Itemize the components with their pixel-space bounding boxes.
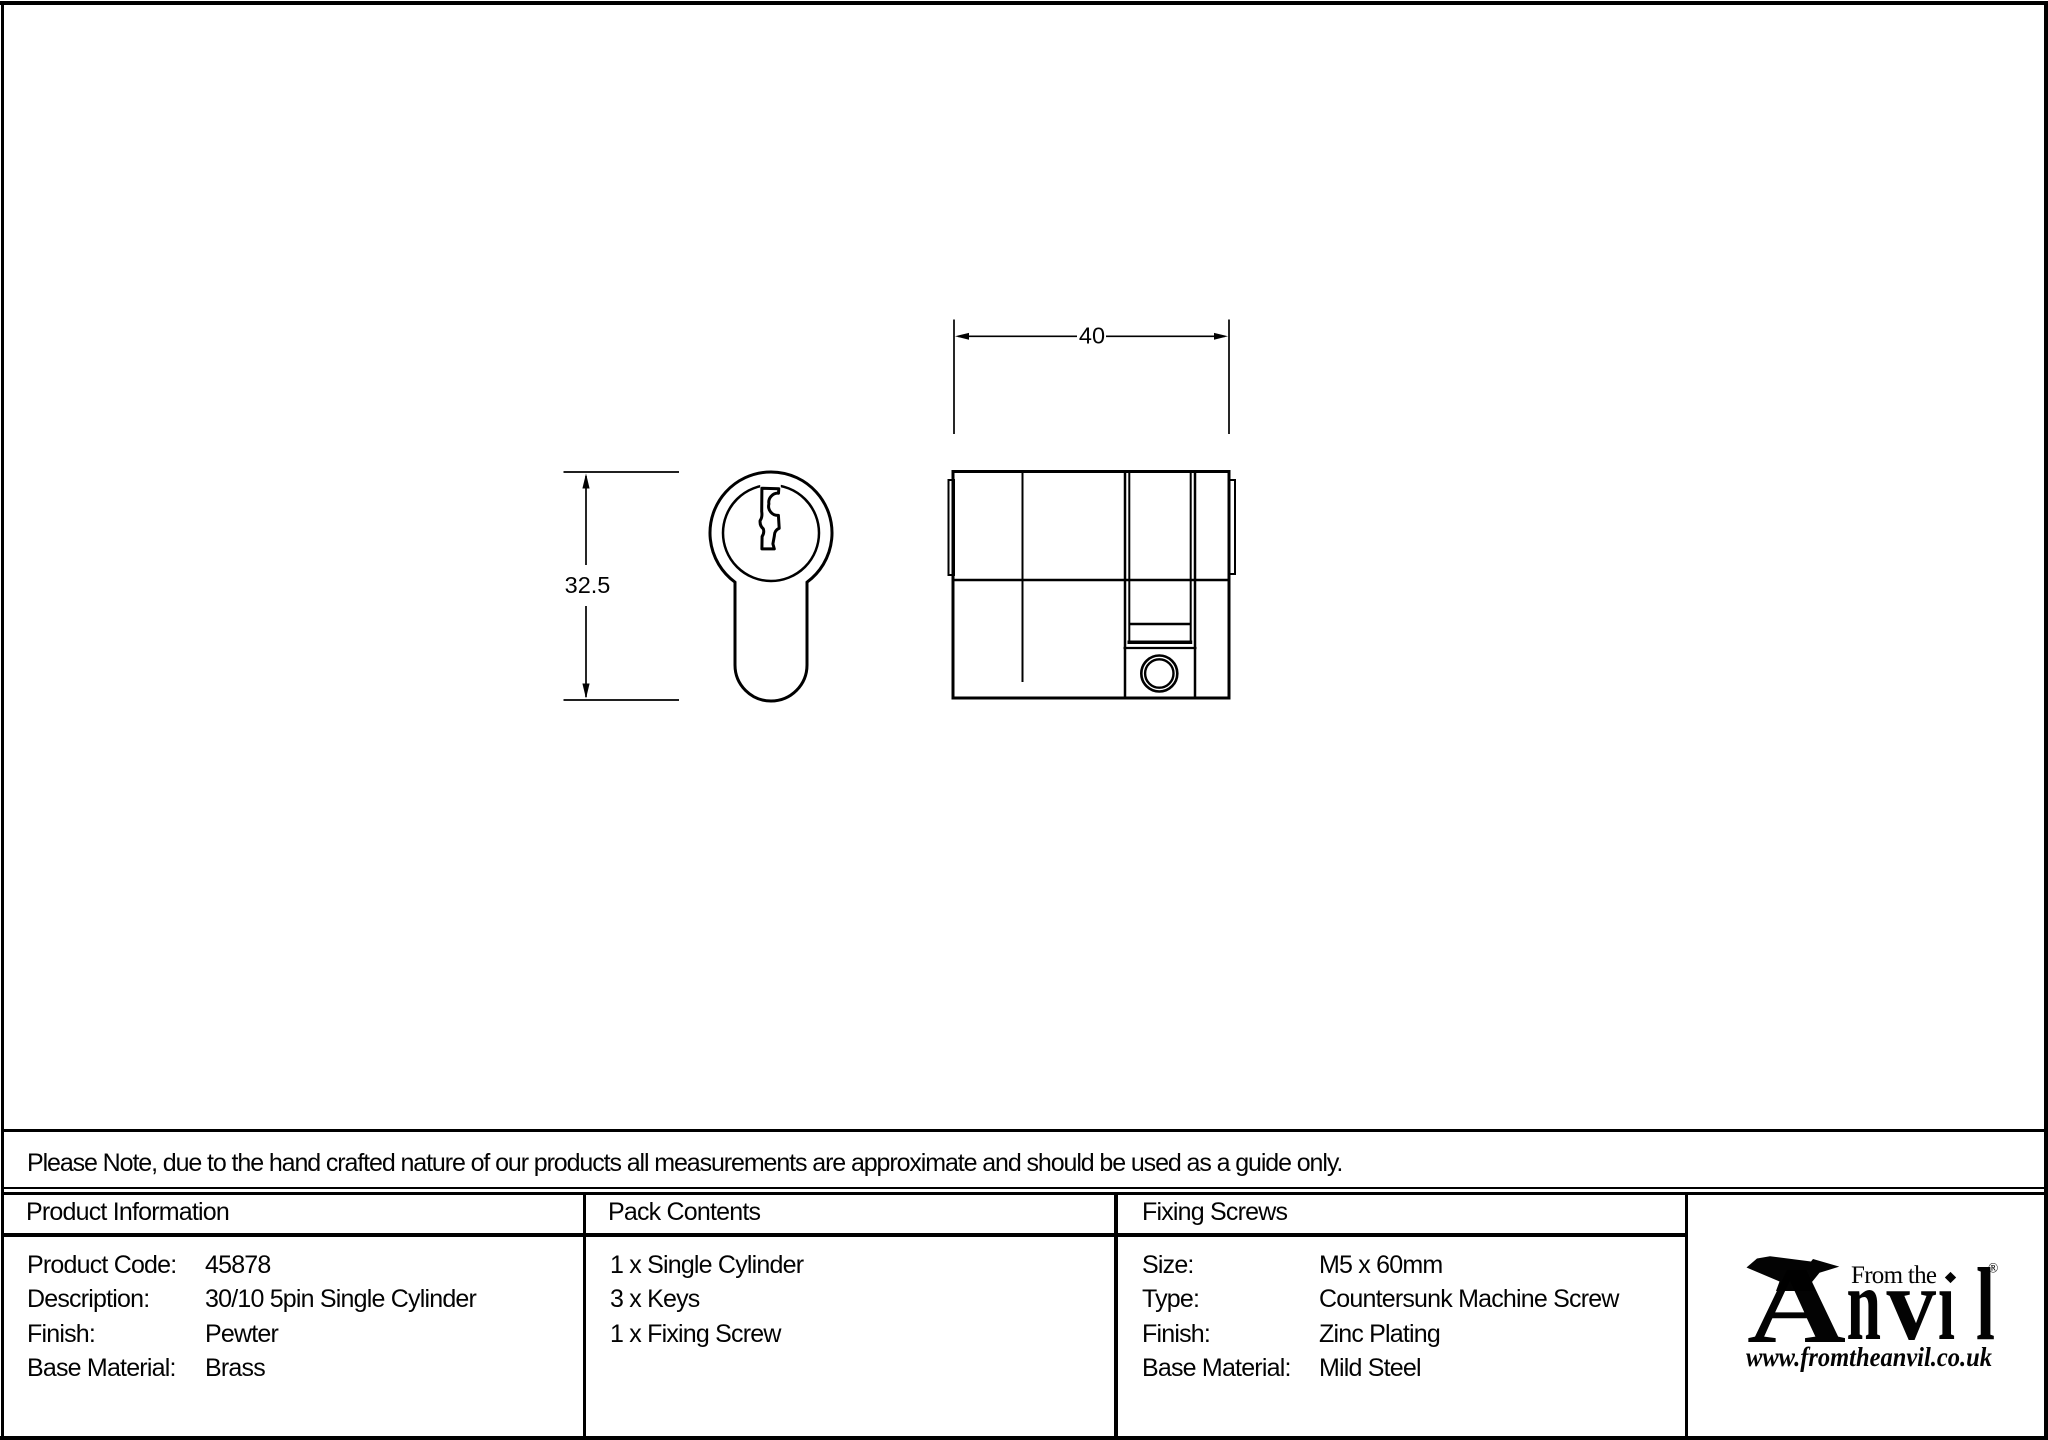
svg-text:32.5: 32.5: [565, 572, 611, 598]
svg-text:40: 40: [1079, 323, 1105, 349]
svg-text:From the: From the: [1851, 1262, 1937, 1289]
svg-text:www.fromtheanvil.co.uk: www.fromtheanvil.co.uk: [1746, 1342, 1992, 1372]
svg-text:®: ®: [1988, 1261, 1998, 1276]
